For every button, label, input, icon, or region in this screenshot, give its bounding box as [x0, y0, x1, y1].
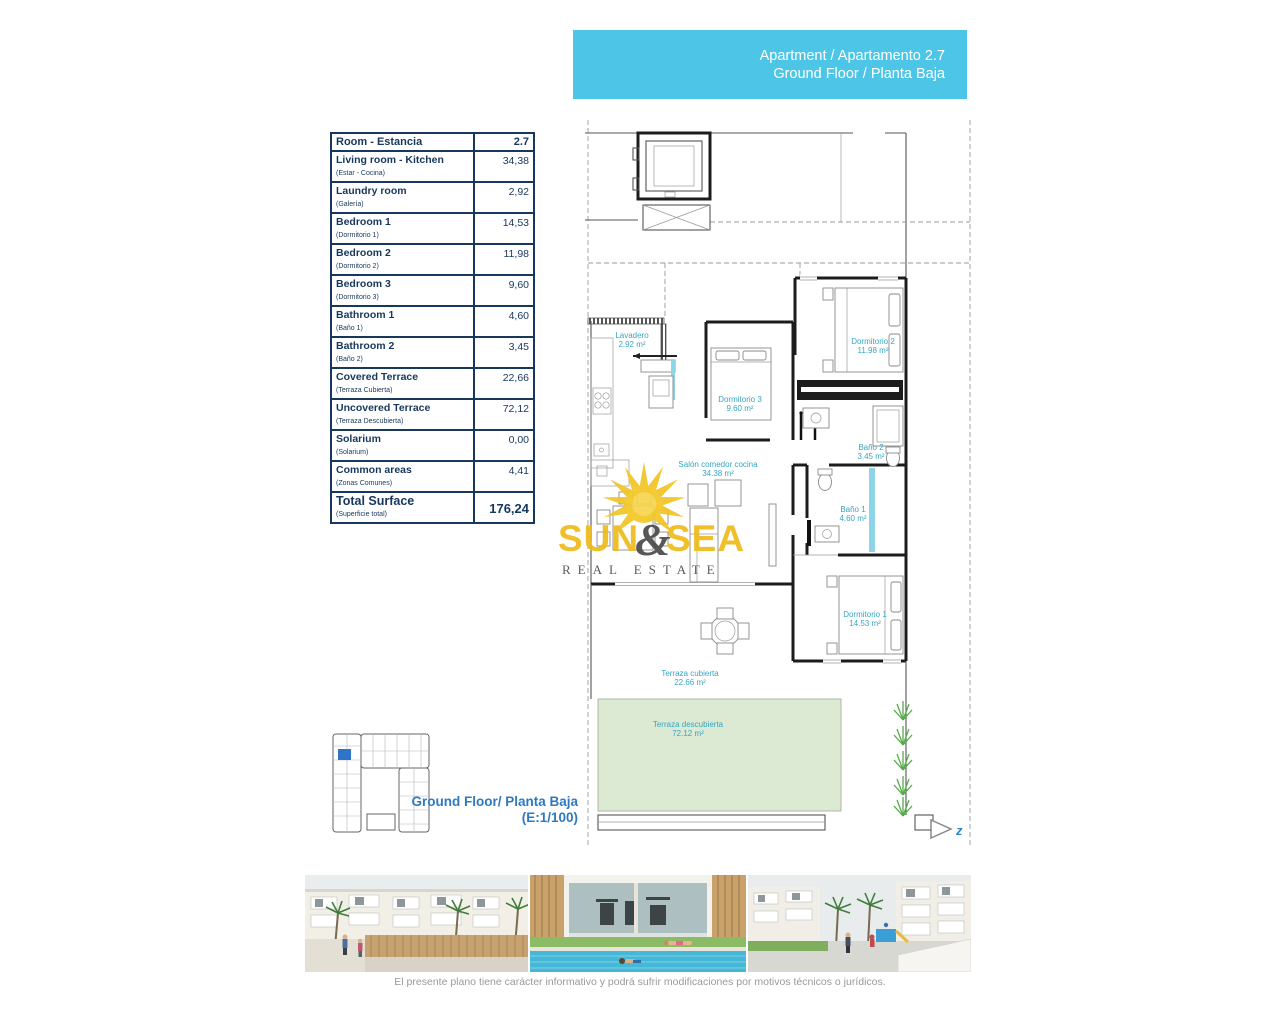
brochure-page: Apartment / Apartamento 2.7 Ground Floor… [0, 0, 1280, 1024]
bathroom-2-fixtures [803, 406, 903, 467]
title-banner: Apartment / Apartamento 2.7 Ground Floor… [573, 30, 967, 99]
svg-text:Terraza descubierta: Terraza descubierta [653, 720, 724, 729]
living-room-furniture [597, 480, 776, 582]
table-row: Living room - Kitchen(Estar - Cocina)34,… [331, 151, 534, 182]
svg-text:34.38 m²: 34.38 m² [702, 469, 734, 478]
svg-text:9.60 m²: 9.60 m² [726, 404, 753, 413]
person [846, 933, 851, 954]
photo-pool-gym [530, 875, 746, 972]
stairs [643, 205, 710, 230]
table-header-value: 2.7 [474, 133, 534, 151]
elevator [633, 133, 710, 199]
svg-text:Dormitorio 2: Dormitorio 2 [851, 337, 895, 346]
table-row: Covered Terrace(Terraza Cubierta)22,66 [331, 368, 534, 399]
planter-hedge [894, 701, 912, 816]
table-row: Uncovered Terrace(Terraza Descubierta)72… [331, 399, 534, 430]
north-arrow-icon: z [931, 820, 963, 838]
svg-text:Dormitorio 1: Dormitorio 1 [843, 610, 887, 619]
table-row: Bedroom 2(Dormitorio 2)11,98 [331, 244, 534, 275]
kitchen-fixtures [591, 338, 629, 486]
table-header-row: Room - Estancia 2.7 [331, 133, 534, 151]
svg-text:2.92 m²: 2.92 m² [618, 340, 645, 349]
svg-text:Dormitorio 3: Dormitorio 3 [718, 395, 762, 404]
table-row: Bathroom 1(Baño 1)4,60 [331, 306, 534, 337]
floor-title: Ground Floor / Planta Baja [773, 65, 945, 83]
svg-text:Salón comedor cocina: Salón comedor cocina [678, 460, 758, 469]
svg-text:72.12 m²: 72.12 m² [672, 729, 704, 738]
svg-text:4.60 m²: 4.60 m² [839, 514, 866, 523]
surface-table: Room - Estancia 2.7 Living room - Kitche… [330, 132, 535, 524]
table-row: Bathroom 2(Baño 2)3,45 [331, 337, 534, 368]
uncovered-terrace-area [598, 699, 841, 811]
sunbather [664, 941, 693, 946]
svg-text:Baño 2: Baño 2 [858, 443, 884, 452]
svg-text:14.53 m²: 14.53 m² [849, 619, 881, 628]
table-total-row: Total Surface(Superficie total)176,24 [331, 492, 534, 523]
terrace-steps [598, 815, 825, 830]
north-label: z [955, 823, 963, 838]
svg-text:Baño 1: Baño 1 [840, 505, 866, 514]
svg-text:3.45 m²: 3.45 m² [857, 452, 884, 461]
photo-exterior-street [305, 875, 528, 972]
table-row: Laundry room(Galería)2,92 [331, 182, 534, 213]
table-row: Common areas(Zonas Comunes)4,41 [331, 461, 534, 492]
table-header-label: Room - Estancia [331, 133, 474, 151]
floor-plan: z Lavadero2.92 m² Dormitorio 39.60 m² Do… [585, 108, 975, 853]
laundry-fixtures [633, 353, 677, 408]
table-row: Solarium(Solarium)0,00 [331, 430, 534, 461]
table-row: Bedroom 3(Dormitorio 3)9,60 [331, 275, 534, 306]
svg-text:22.66 m²: 22.66 m² [674, 678, 706, 687]
highlighted-unit [338, 749, 351, 760]
floor-scale-label: Ground Floor/ Planta Baja (E:1/100) [330, 794, 578, 826]
apartment-title: Apartment / Apartamento 2.7 [760, 47, 945, 65]
disclaimer-text: El presente plano tiene carácter informa… [300, 976, 980, 988]
render-photos-strip [305, 875, 975, 972]
table-row: Bedroom 1(Dormitorio 1)14,53 [331, 213, 534, 244]
svg-text:11.98 m²: 11.98 m² [858, 346, 889, 355]
photo-courtyard-playground [748, 875, 971, 972]
svg-text:Lavadero: Lavadero [615, 331, 649, 340]
terrace-table [701, 608, 749, 654]
svg-text:Terraza cubierta: Terraza cubierta [661, 669, 719, 678]
